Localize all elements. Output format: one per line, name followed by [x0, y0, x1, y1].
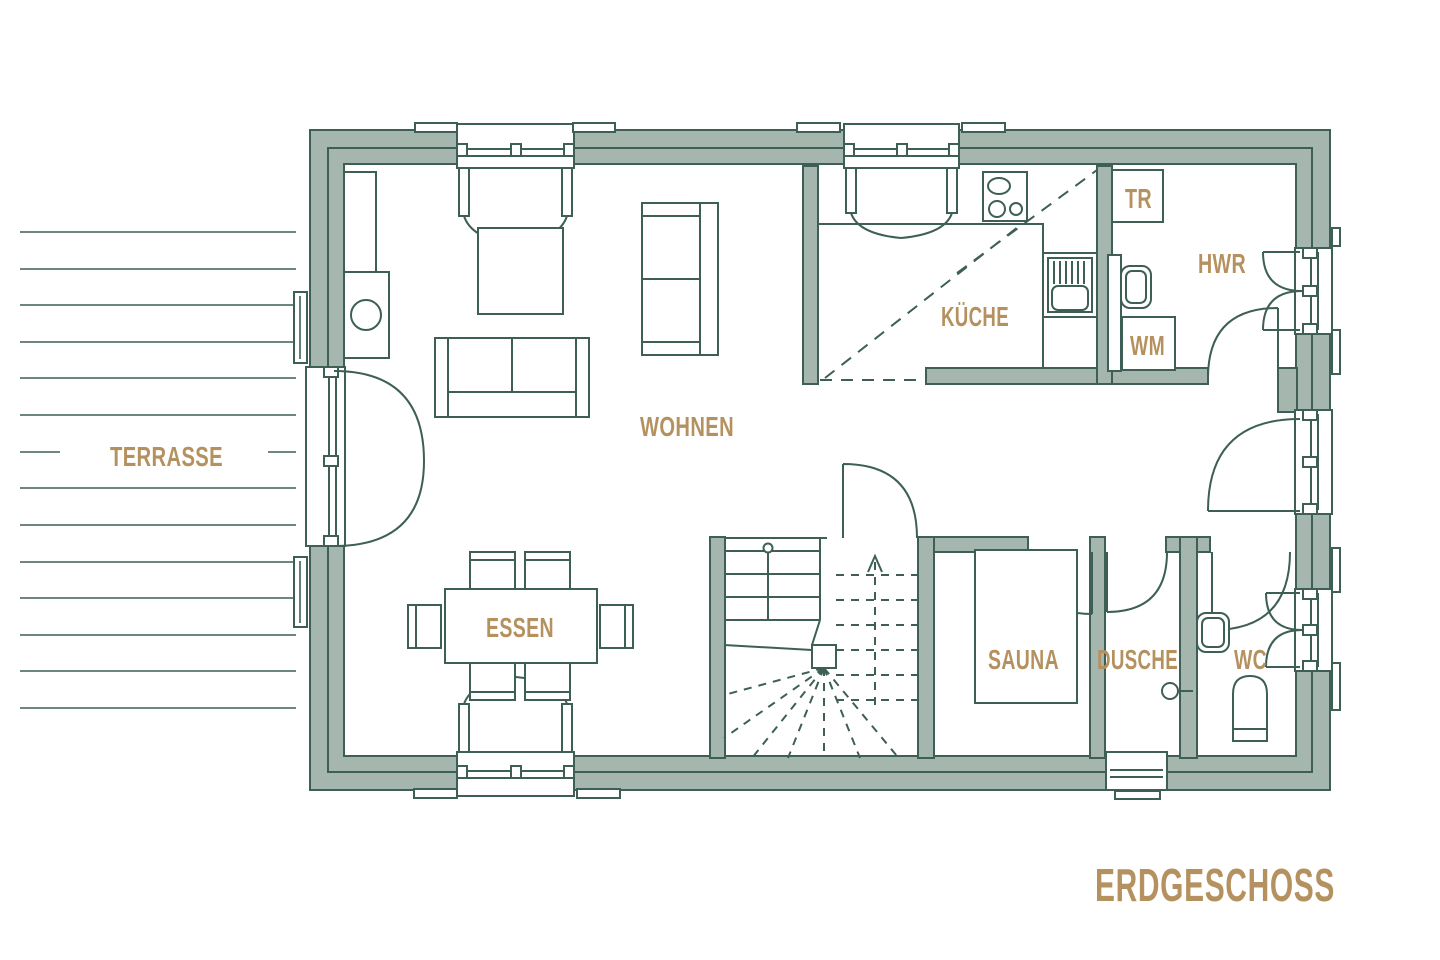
stair-right-wall	[918, 537, 934, 758]
chair	[600, 605, 633, 648]
door-leaf	[562, 704, 572, 752]
newel-post	[764, 544, 773, 553]
floor-plan-drawing: TERRASSE WOHNEN ESSEN KÜCHE TR HWR WM SA…	[0, 0, 1440, 960]
chimney	[344, 172, 376, 272]
sauna-bench	[975, 550, 1077, 703]
label-tr: TR	[1125, 183, 1152, 214]
door-leaf	[562, 168, 572, 216]
dusche-window-bottom	[1106, 752, 1167, 790]
label-wohnen: WOHNEN	[640, 411, 734, 442]
toilet	[1233, 676, 1267, 741]
label-kueche: KÜCHE	[941, 301, 1009, 332]
chair	[408, 605, 441, 648]
label-hwr: HWR	[1198, 248, 1246, 279]
label-wc: WC	[1234, 644, 1267, 675]
label-dusche: DUSCHE	[1097, 644, 1178, 675]
label-essen: ESSEN	[486, 612, 554, 643]
kitchen-left-wall	[803, 166, 818, 384]
hwr-counter	[1108, 255, 1121, 371]
coffee-table	[478, 228, 563, 314]
door-leaf	[459, 704, 469, 752]
chair	[470, 552, 515, 589]
chair	[525, 552, 570, 589]
label-terrasse: TERRASSE	[110, 441, 223, 472]
hwr-wall-stub	[1278, 368, 1297, 412]
center-newel	[812, 645, 836, 668]
door-leaf	[947, 168, 957, 213]
floor-plan-page: TERRASSE WOHNEN ESSEN KÜCHE TR HWR WM SA…	[0, 0, 1440, 960]
chair	[525, 663, 570, 700]
wc-top-wall-stub	[1197, 537, 1210, 552]
chair	[470, 663, 515, 700]
door-leaf	[846, 168, 856, 213]
stair-left-wall	[710, 537, 725, 758]
label-wm: WM	[1130, 330, 1165, 361]
label-sauna: SAUNA	[988, 644, 1059, 675]
dusche-wc-wall	[1180, 537, 1197, 758]
plan-title: ERDGESCHOSS	[1095, 859, 1335, 911]
door-leaf	[459, 168, 469, 216]
